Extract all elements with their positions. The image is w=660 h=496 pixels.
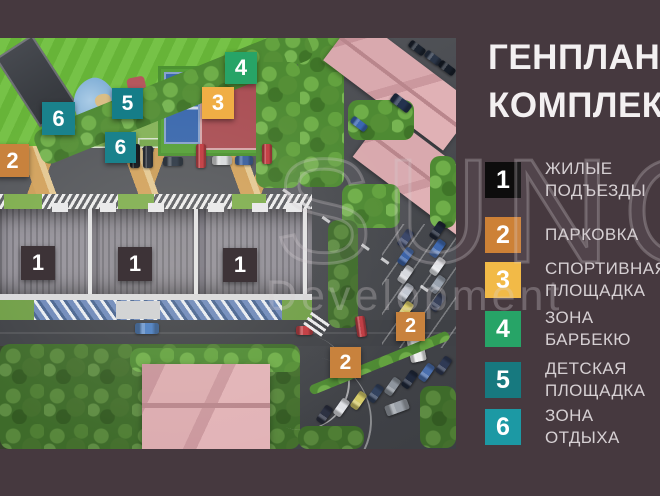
legend-label-6: ЗОНА ОТДЫХА <box>545 405 660 449</box>
legend-item-entrances: 1 ЖИЛЫЕ ПОДЪЕЗДЫ <box>485 162 660 198</box>
legend-item-rest-zone: 6 ЗОНА ОТДЫХА <box>485 409 660 445</box>
legend-label-5: ДЕТСКАЯ ПЛОЩАДКА <box>545 358 645 402</box>
map-marker-sports: 3 <box>202 87 234 119</box>
map-marker-playground: 5 <box>112 88 143 119</box>
legend-swatch-1: 1 <box>485 162 521 198</box>
legend-item-barbecue: 4 ЗОНА БАРБЕКЮ <box>485 311 660 347</box>
title-line-2: КОМПЛЕКСА <box>488 82 660 130</box>
legend-label-1: ЖИЛЫЕ ПОДЪЕЗДЫ <box>545 158 660 202</box>
site-plan-image: 2 6 5 6 4 3 1 1 1 2 2 <box>0 38 456 449</box>
legend-swatch-6: 6 <box>485 409 521 445</box>
map-marker-rest-zone: 6 <box>105 132 136 163</box>
legend-item-playground: 5 ДЕТСКАЯ ПЛОЩАДКА <box>485 362 645 398</box>
map-marker-parking: 2 <box>0 144 29 177</box>
legend-label-4: ЗОНА БАРБЕКЮ <box>545 307 660 351</box>
legend-swatch-2: 2 <box>485 217 521 253</box>
legend-swatch-5: 5 <box>485 362 521 398</box>
map-marker-rest-zone: 6 <box>42 102 75 135</box>
legend-swatch-3: 3 <box>485 262 521 298</box>
map-marker-entrance: 1 <box>21 246 55 280</box>
map-marker-parking: 2 <box>330 347 361 378</box>
legend-label-3: СПОРТИВНАЯ ПЛОЩАДКА <box>545 258 660 302</box>
legend-label-2: ПАРКОВКА <box>545 224 639 246</box>
legend-item-sports: 3 СПОРТИВНАЯ ПЛОЩАДКА <box>485 262 660 298</box>
map-marker-parking: 2 <box>396 312 425 341</box>
map-marker-entrance: 1 <box>223 248 257 282</box>
map-marker-entrance: 1 <box>118 247 152 281</box>
title-line-1: ГЕНПЛАН <box>488 34 660 82</box>
map-marker-barbecue: 4 <box>225 52 257 84</box>
slide-title: ГЕНПЛАН КОМПЛЕКСА <box>488 34 660 130</box>
genplan-slide: { "title": { "line1": "ГЕНПЛАН", "line2"… <box>0 0 660 496</box>
legend-swatch-4: 4 <box>485 311 521 347</box>
legend-item-parking: 2 ПАРКОВКА <box>485 217 639 253</box>
